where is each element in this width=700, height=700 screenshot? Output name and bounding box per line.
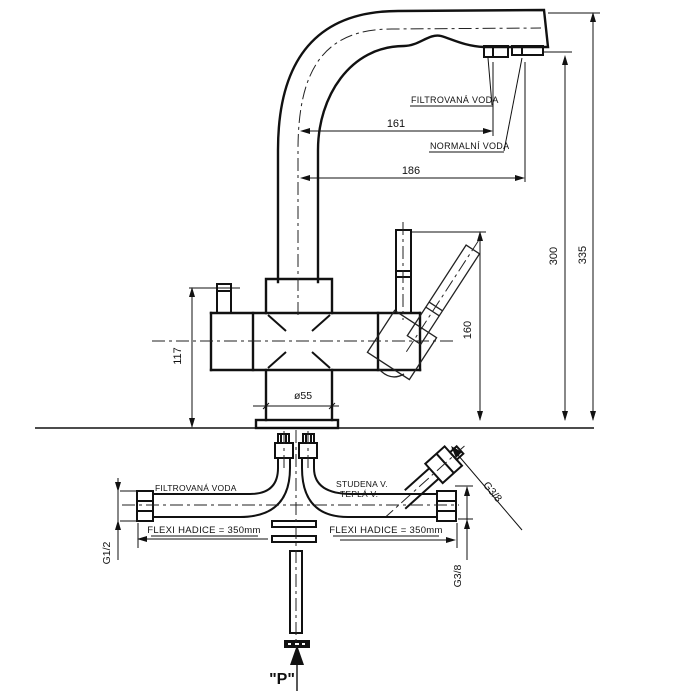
label-flexi-right: FLEXI HADICE = 350mm: [329, 525, 442, 536]
label-flexi-left: FLEXI HADICE = 350mm: [147, 525, 260, 536]
valve-body: [211, 230, 485, 428]
label-thread-g12: G1/2: [101, 541, 113, 564]
text-labels: FILTROVANÁ VODA NORMALNÍ VODA 161 186 30…: [101, 95, 589, 688]
label-filtered-water-bottom: FILTROVANÁ VODA: [155, 483, 237, 493]
label-thread-g38-bottom: G3/8: [452, 564, 464, 587]
dim-186: 186: [402, 165, 420, 177]
drawing-canvas: FILTROVANÁ VODA NORMALNÍ VODA 161 186 30…: [0, 0, 700, 700]
base-plate: [256, 420, 338, 428]
mounting-plate-upper: [272, 521, 316, 527]
dim-117: 117: [172, 347, 184, 365]
angled-hose-g38: [377, 436, 473, 526]
right-hose: [302, 458, 456, 521]
centerlines: [122, 28, 541, 648]
dim-335: 335: [577, 246, 589, 264]
dim-161: 161: [387, 118, 405, 130]
dim-160: 160: [462, 321, 474, 339]
faucet-technical-drawing: FILTROVANÁ VODA NORMALNÍ VODA 161 186 30…: [0, 0, 700, 700]
g38-connector: [437, 491, 456, 521]
upper-housing: [266, 279, 332, 313]
dimension-lines: [115, 12, 600, 560]
g12-connector: [137, 491, 153, 521]
label-normal-water: NORMALNÍ VODA: [430, 141, 509, 151]
mounting-plate-lower: [272, 536, 316, 542]
label-pressure-point: "P": [269, 671, 295, 688]
dim-base-diameter: ø55: [294, 390, 312, 402]
label-filtered-water-top: FILTROVANÁ VODA: [411, 95, 499, 105]
label-thread-g38-angled: G3/8: [480, 479, 504, 504]
label-cold-water: STUDENA V.: [336, 479, 388, 489]
mounting-hardware: [272, 521, 316, 691]
label-hot-water: TEPLÁ V.: [340, 489, 378, 499]
dim-300: 300: [548, 247, 560, 265]
